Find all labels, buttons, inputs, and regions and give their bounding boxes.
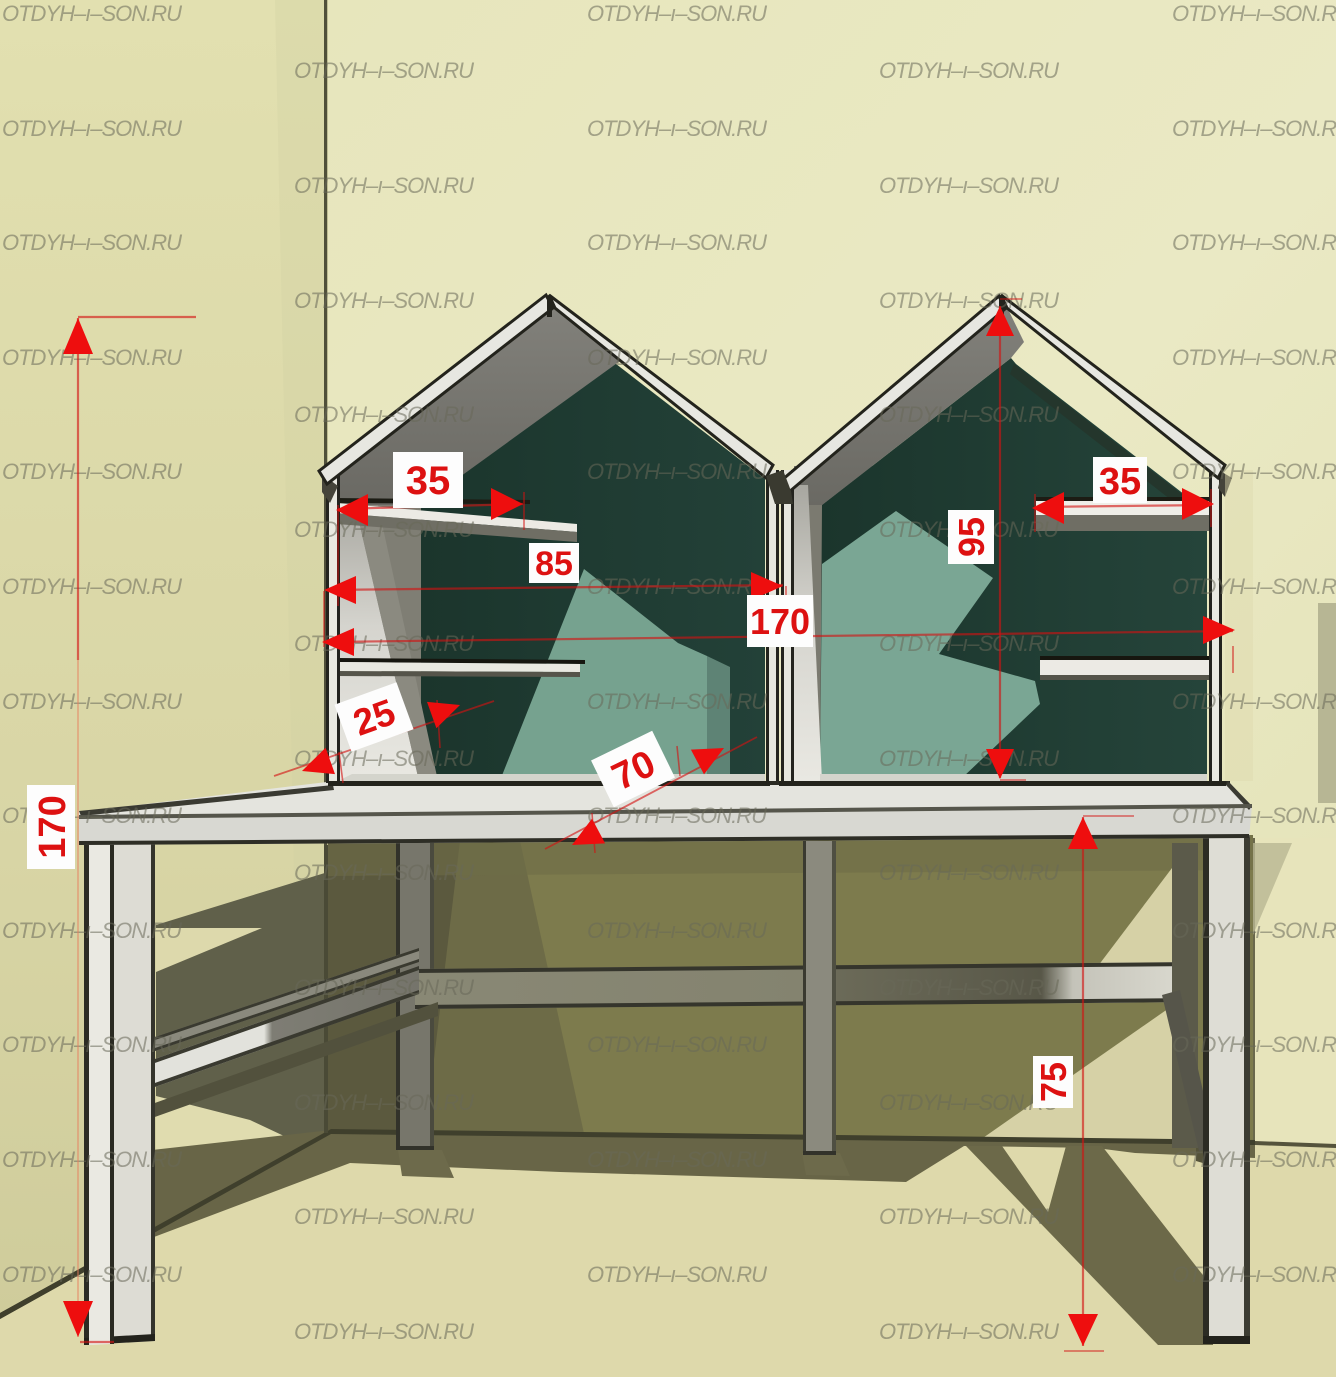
svg-text:OTDYH–ı–SON.RU: OTDYH–ı–SON.RU — [879, 402, 1059, 427]
svg-text:OTDYH–ı–SON.RU: OTDYH–ı–SON.RU — [879, 975, 1059, 1000]
svg-text:OTDYH–ı–SON.RU: OTDYH–ı–SON.RU — [879, 1319, 1059, 1344]
svg-text:95: 95 — [951, 517, 992, 557]
svg-text:OTDYH–ı–SON.RU: OTDYH–ı–SON.RU — [587, 1, 767, 26]
svg-text:OTDYH–ı–SON.RU: OTDYH–ı–SON.RU — [294, 402, 474, 427]
svg-text:OTDYH–ı–SON.RU: OTDYH–ı–SON.RU — [587, 689, 767, 714]
svg-text:OTDYH–ı–SON.RU: OTDYH–ı–SON.RU — [587, 918, 767, 943]
svg-text:OTDYH–ı–SON.RU: OTDYH–ı–SON.RU — [1172, 230, 1336, 255]
svg-text:OTDYH–ı–SON.RU: OTDYH–ı–SON.RU — [879, 860, 1059, 885]
svg-text:OTDYH–ı–SON.RU: OTDYH–ı–SON.RU — [587, 1262, 767, 1287]
svg-text:OTDYH–ı–SON.RU: OTDYH–ı–SON.RU — [1172, 918, 1336, 943]
svg-text:OTDYH–ı–SON.RU: OTDYH–ı–SON.RU — [294, 173, 474, 198]
svg-text:35: 35 — [1099, 461, 1141, 503]
svg-text:OTDYH–ı–SON.RU: OTDYH–ı–SON.RU — [1172, 459, 1336, 484]
svg-text:OTDYH–ı–SON.RU: OTDYH–ı–SON.RU — [2, 230, 182, 255]
svg-text:OTDYH–ı–SON.RU: OTDYH–ı–SON.RU — [879, 1204, 1059, 1229]
svg-text:OTDYH–ı–SON.RU: OTDYH–ı–SON.RU — [2, 1147, 182, 1172]
svg-text:OTDYH–ı–SON.RU: OTDYH–ı–SON.RU — [2, 574, 182, 599]
svg-text:OTDYH–ı–SON.RU: OTDYH–ı–SON.RU — [1172, 116, 1336, 141]
svg-text:OTDYH–ı–SON.RU: OTDYH–ı–SON.RU — [294, 1090, 474, 1115]
svg-text:OTDYH–ı–SON.RU: OTDYH–ı–SON.RU — [2, 1032, 182, 1057]
svg-text:OTDYH–ı–SON.RU: OTDYH–ı–SON.RU — [879, 746, 1059, 771]
svg-text:OTDYH–ı–SON.RU: OTDYH–ı–SON.RU — [2, 345, 182, 370]
svg-text:OTDYH–ı–SON.RU: OTDYH–ı–SON.RU — [2, 918, 182, 943]
svg-text:170: 170 — [750, 601, 810, 642]
svg-text:OTDYH–ı–SON.RU: OTDYH–ı–SON.RU — [294, 1319, 474, 1344]
svg-text:75: 75 — [1033, 1062, 1074, 1102]
svg-text:OTDYH–ı–SON.RU: OTDYH–ı–SON.RU — [587, 116, 767, 141]
svg-text:OTDYH–ı–SON.RU: OTDYH–ı–SON.RU — [879, 173, 1059, 198]
svg-text:170: 170 — [32, 795, 74, 858]
svg-text:OTDYH–ı–SON.RU: OTDYH–ı–SON.RU — [294, 517, 474, 542]
svg-text:OTDYH–ı–SON.RU: OTDYH–ı–SON.RU — [1172, 1032, 1336, 1057]
svg-text:OTDYH–ı–SON.RU: OTDYH–ı–SON.RU — [587, 1147, 767, 1172]
svg-text:OTDYH–ı–SON.RU: OTDYH–ı–SON.RU — [587, 230, 767, 255]
svg-text:35: 35 — [406, 459, 451, 503]
svg-text:OTDYH–ı–SON.RU: OTDYH–ı–SON.RU — [879, 58, 1059, 83]
svg-text:OTDYH–ı–SON.RU: OTDYH–ı–SON.RU — [294, 860, 474, 885]
svg-text:OTDYH–ı–SON.RU: OTDYH–ı–SON.RU — [294, 975, 474, 1000]
svg-text:OTDYH–ı–SON.RU: OTDYH–ı–SON.RU — [2, 1, 182, 26]
svg-text:OTDYH–ı–SON.RU: OTDYH–ı–SON.RU — [879, 288, 1059, 313]
svg-text:OTDYH–ı–SON.RU: OTDYH–ı–SON.RU — [1172, 689, 1336, 714]
svg-text:OTDYH–ı–SON.RU: OTDYH–ı–SON.RU — [294, 288, 474, 313]
svg-text:OTDYH–ı–SON.RU: OTDYH–ı–SON.RU — [1172, 1262, 1336, 1287]
svg-text:85: 85 — [535, 545, 573, 583]
svg-text:OTDYH–ı–SON.RU: OTDYH–ı–SON.RU — [2, 116, 182, 141]
svg-text:OTDYH–ı–SON.RU: OTDYH–ı–SON.RU — [587, 1032, 767, 1057]
svg-text:OTDYH–ı–SON.RU: OTDYH–ı–SON.RU — [1172, 1, 1336, 26]
svg-text:OTDYH–ı–SON.RU: OTDYH–ı–SON.RU — [1172, 574, 1336, 599]
svg-text:OTDYH–ı–SON.RU: OTDYH–ı–SON.RU — [2, 689, 182, 714]
svg-text:OTDYH–ı–SON.RU: OTDYH–ı–SON.RU — [294, 58, 474, 83]
svg-text:OTDYH–ı–SON.RU: OTDYH–ı–SON.RU — [2, 1262, 182, 1287]
svg-text:OTDYH–ı–SON.RU: OTDYH–ı–SON.RU — [1172, 1147, 1336, 1172]
svg-text:OTDYH–ı–SON.RU: OTDYH–ı–SON.RU — [294, 1204, 474, 1229]
svg-text:OTDYH–ı–SON.RU: OTDYH–ı–SON.RU — [587, 345, 767, 370]
svg-text:OTDYH–ı–SON.RU: OTDYH–ı–SON.RU — [587, 459, 767, 484]
svg-text:OTDYH–ı–SON.RU: OTDYH–ı–SON.RU — [1172, 345, 1336, 370]
svg-text:OTDYH–ı–SON.RU: OTDYH–ı–SON.RU — [294, 631, 474, 656]
svg-text:OTDYH–ı–SON.RU: OTDYH–ı–SON.RU — [1172, 803, 1336, 828]
svg-text:OTDYH–ı–SON.RU: OTDYH–ı–SON.RU — [2, 459, 182, 484]
